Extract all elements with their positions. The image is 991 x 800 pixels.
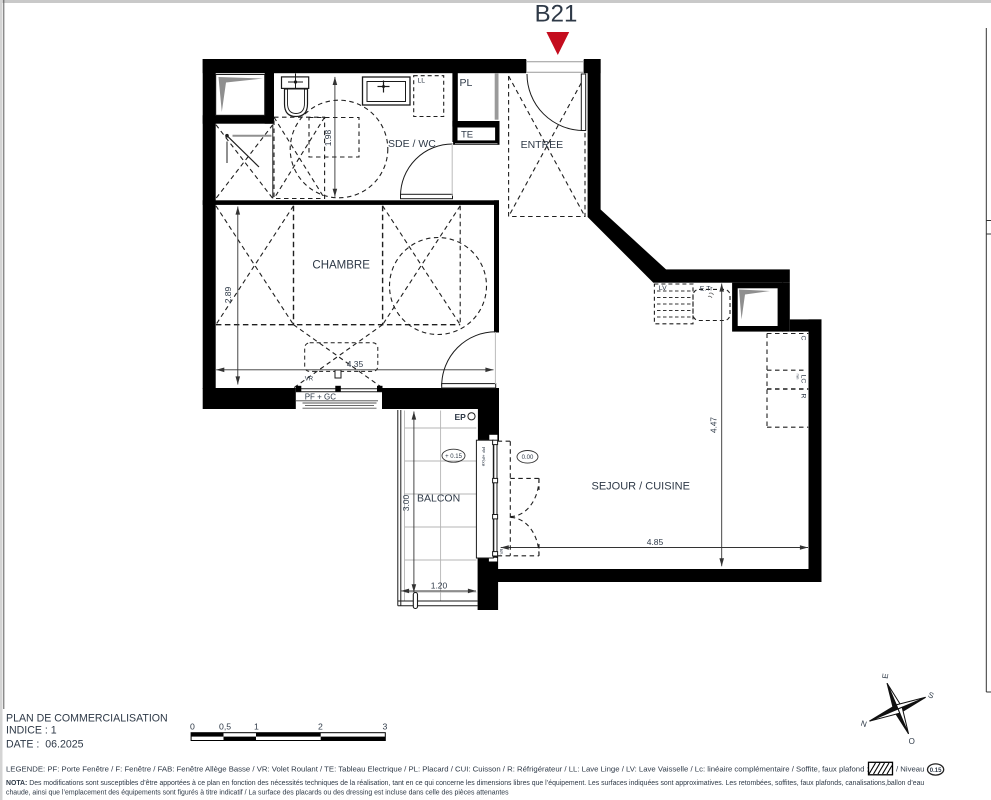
svg-text:3: 3 [383,722,388,732]
svg-text:1.98: 1.98 [323,129,333,146]
svg-text:C: C [800,336,807,341]
svg-text:ENTREE: ENTREE [521,139,564,151]
svg-text:VR: VR [499,549,504,555]
svg-text:LV: LV [659,285,667,292]
svg-text:PL: PL [460,77,473,89]
svg-text:LL: LL [418,78,426,85]
svg-text:SEJOUR / CUISINE: SEJOUR / CUISINE [592,481,690,493]
svg-text:E: E [881,673,891,679]
svg-text:PF +Fixe: PF +Fixe [480,447,486,467]
svg-text:PLAN DE COMMERCIALISATION: PLAN DE COMMERCIALISATION [6,713,168,725]
svg-text:1.20: 1.20 [431,581,448,591]
svg-text:0,5: 0,5 [219,722,231,732]
svg-text:4.35: 4.35 [347,359,364,369]
svg-text:2: 2 [318,722,323,732]
svg-text:TE: TE [461,130,473,141]
svg-text:4.47: 4.47 [710,417,719,433]
svg-text:R: R [800,394,807,399]
svg-text:min: min [796,374,800,380]
svg-text:/ Niveau: / Niveau [896,765,924,774]
svg-text:EP: EP [455,412,467,422]
svg-text:0.15: 0.15 [930,768,942,774]
svg-text:B21: B21 [535,1,578,28]
svg-text:LEGENDE: PF: Porte Fenêtre / F: LEGENDE: PF: Porte Fenêtre / F: Fenêtre … [6,765,869,774]
svg-text:chaude, ainsi que l’emplacemen: chaude, ainsi que l’emplacement des équi… [6,790,509,797]
svg-text:1: 1 [254,722,259,732]
svg-text:2.89: 2.89 [223,286,233,303]
svg-text:INDICE : 1: INDICE : 1 [6,725,57,737]
svg-text:4.85: 4.85 [647,537,664,547]
svg-text:CHAMBRE: CHAMBRE [312,260,370,272]
svg-text:SDE / WC: SDE / WC [388,138,436,150]
svg-text:VR: VR [305,377,314,383]
svg-text:+ 0.15: + 0.15 [445,454,463,460]
svg-text:BALCON: BALCON [417,493,460,505]
svg-text:NOTA: Des modifications sont: NOTA: Des modifications sont susceptible… [6,780,924,787]
svg-text:0.00: 0.00 [522,455,534,461]
svg-text:O: O [909,737,915,746]
svg-text:LC: LC [800,375,807,384]
svg-text:E.Tr: E.Tr [700,286,713,293]
svg-text:3.00: 3.00 [401,494,411,511]
svg-text:PF + GC: PF + GC [305,392,337,401]
svg-text:0: 0 [190,722,195,732]
svg-text:DATE : 06.2025: DATE : 06.2025 [6,739,84,751]
